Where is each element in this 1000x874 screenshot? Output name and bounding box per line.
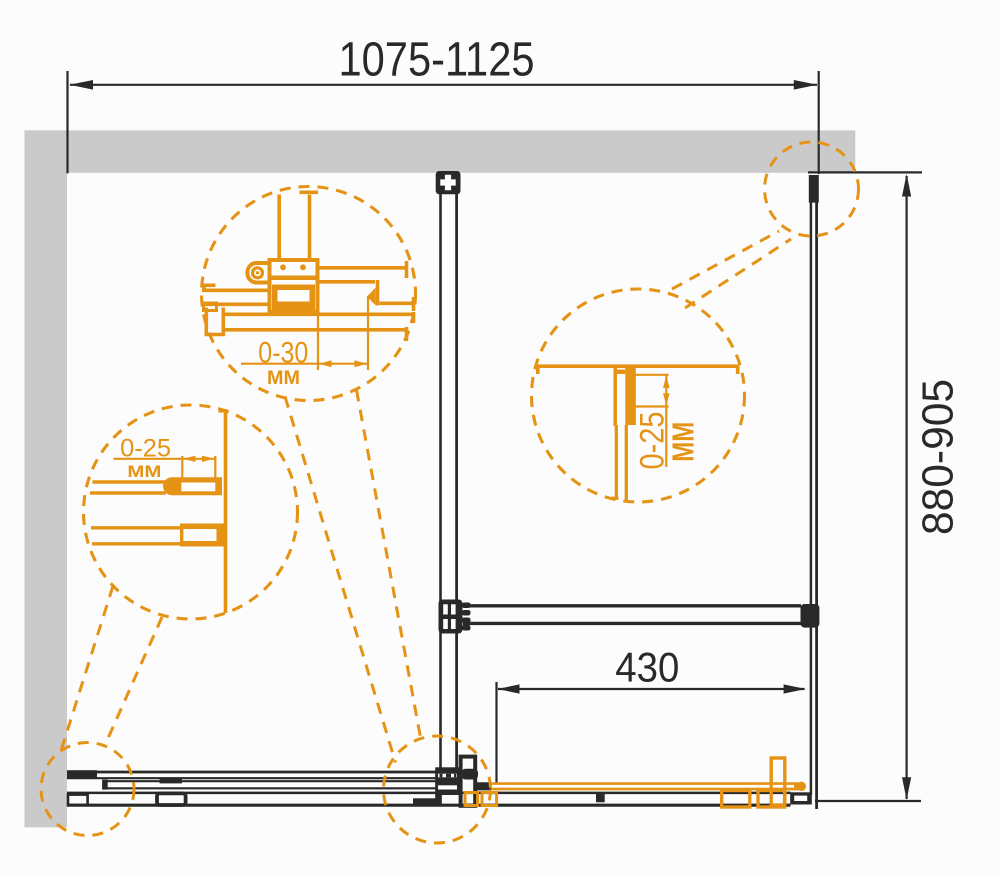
svg-text:1075-1125: 1075-1125	[339, 34, 535, 87]
svg-text:MM: MM	[267, 368, 300, 389]
svg-text:MM: MM	[127, 463, 161, 481]
svg-text:0-25: 0-25	[120, 434, 171, 462]
svg-text:880-905: 880-905	[914, 379, 963, 535]
svg-text:MM: MM	[666, 422, 701, 462]
svg-text:430: 430	[615, 644, 679, 691]
svg-text:0-30: 0-30	[258, 336, 308, 369]
